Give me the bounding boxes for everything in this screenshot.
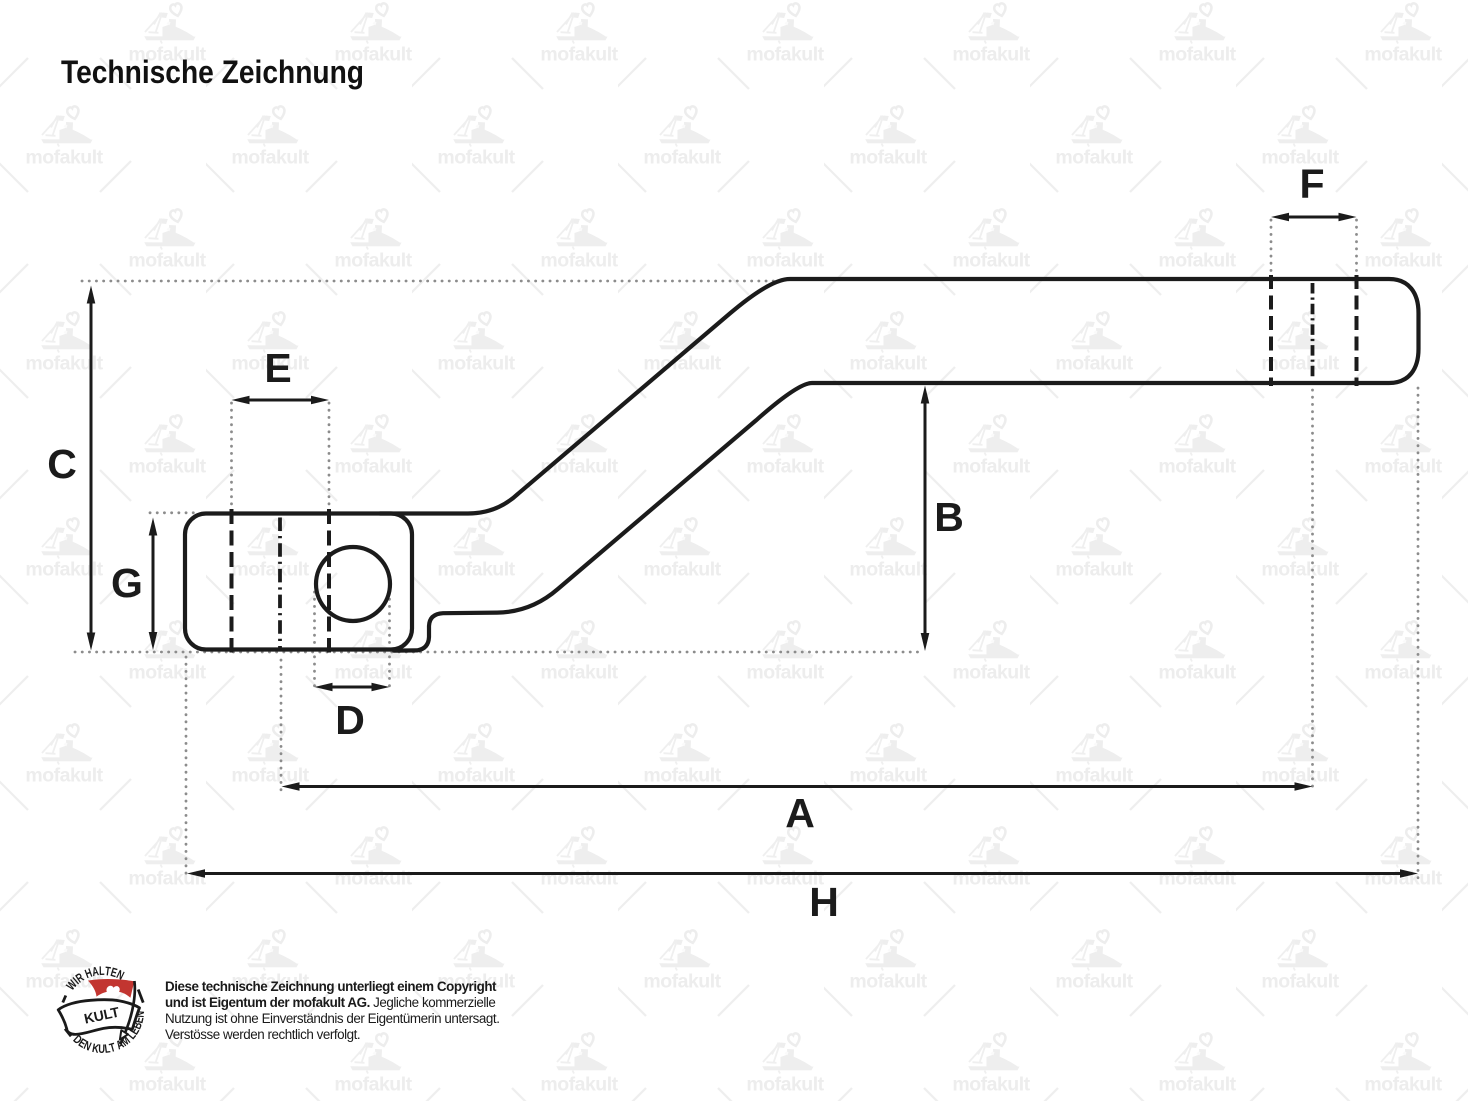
svg-text:Technische Zeichnung: Technische Zeichnung [61,54,364,90]
svg-text:Verstösse werden rechtlich ver: Verstösse werden rechtlich verfolgt. [165,1027,360,1042]
svg-text:H: H [809,879,839,925]
svg-text:E: E [264,345,291,391]
svg-text:C: C [47,441,77,487]
svg-text:A: A [785,790,815,836]
svg-text:D: D [335,697,365,743]
svg-text:B: B [934,494,964,540]
svg-text:und ist Eigentum der mofakult: und ist Eigentum der mofakult AG. Jeglic… [165,995,495,1010]
svg-text:Nutzung ist ohne Einverständni: Nutzung ist ohne Einverständnis der Eige… [165,1011,499,1026]
svg-text:Diese technische Zeichnung unt: Diese technische Zeichnung unterliegt ei… [165,979,497,994]
svg-text:G: G [111,560,143,606]
svg-text:F: F [1299,161,1324,207]
